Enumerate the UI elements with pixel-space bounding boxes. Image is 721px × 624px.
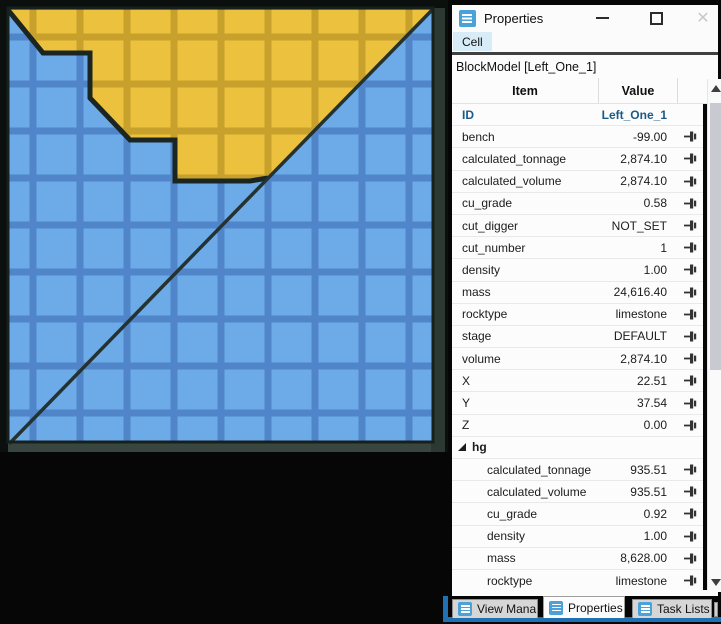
property-value: 24,616.40 bbox=[599, 285, 678, 299]
property-value: limestone bbox=[599, 307, 678, 321]
property-row[interactable]: calculated_tonnage 935.51 bbox=[452, 459, 703, 481]
property-label: calculated_volume bbox=[452, 174, 599, 188]
pin-cell[interactable] bbox=[678, 531, 703, 542]
tab-task-lists[interactable]: Task Lists bbox=[632, 599, 712, 618]
property-value: 1.00 bbox=[599, 529, 678, 543]
property-value: 1 bbox=[599, 241, 678, 255]
tab-overflow-sliver[interactable] bbox=[714, 602, 718, 617]
property-label: stage bbox=[452, 329, 599, 343]
property-value: NOT_SET bbox=[599, 219, 678, 233]
property-label: cu_grade bbox=[452, 196, 599, 210]
block-model-svg bbox=[0, 0, 448, 452]
property-label: cu_grade bbox=[452, 507, 599, 521]
property-label: hg bbox=[452, 440, 599, 454]
scrollbar-thumb[interactable] bbox=[710, 103, 721, 370]
pin-icon bbox=[684, 264, 698, 275]
blockmodel-header: BlockModel [Left_One_1] bbox=[452, 55, 718, 78]
property-value: Left_One_1 bbox=[599, 108, 678, 122]
property-value: DEFAULT bbox=[599, 329, 678, 343]
property-value: 37.54 bbox=[599, 396, 678, 410]
property-row[interactable]: Z 0.00 bbox=[452, 415, 703, 437]
scroll-down-icon[interactable] bbox=[711, 579, 721, 586]
property-label: Z bbox=[452, 418, 599, 432]
property-row[interactable]: X 22.51 bbox=[452, 370, 703, 392]
property-value: 2,874.10 bbox=[599, 174, 678, 188]
pin-cell[interactable] bbox=[678, 198, 703, 209]
property-row[interactable]: volume 2,874.10 bbox=[452, 348, 703, 370]
property-label: bench bbox=[452, 130, 599, 144]
pin-icon bbox=[684, 508, 698, 519]
view-manager-tab-icon bbox=[458, 602, 472, 616]
property-row[interactable]: calculated_tonnage 2,874.10 bbox=[452, 148, 703, 170]
property-label: rocktype bbox=[452, 307, 599, 321]
pin-cell[interactable] bbox=[678, 375, 703, 386]
property-value: 2,874.10 bbox=[599, 152, 678, 166]
tab-view-manager[interactable]: View Mana bbox=[452, 599, 538, 618]
pin-icon bbox=[684, 220, 698, 231]
property-row[interactable]: hg bbox=[452, 437, 703, 459]
pin-cell[interactable] bbox=[678, 464, 703, 475]
property-row[interactable]: mass 24,616.40 bbox=[452, 282, 703, 304]
property-label: X bbox=[452, 374, 599, 388]
property-value: 22.51 bbox=[599, 374, 678, 388]
property-row[interactable]: cu_grade 0.92 bbox=[452, 503, 703, 525]
expander-icon[interactable] bbox=[458, 443, 466, 451]
property-label: rocktype bbox=[452, 574, 599, 588]
property-label: calculated_tonnage bbox=[452, 152, 599, 166]
app-window: Properties ✕ Cell BlockModel [Left_One_1… bbox=[0, 0, 721, 624]
property-label: density bbox=[452, 529, 599, 543]
close-button[interactable]: ✕ bbox=[692, 5, 714, 31]
property-row[interactable]: calculated_volume 2,874.10 bbox=[452, 171, 703, 193]
property-row[interactable]: rocktype limestone bbox=[452, 570, 703, 592]
property-row[interactable]: cu_grade 0.58 bbox=[452, 193, 703, 215]
property-value: 935.51 bbox=[599, 463, 678, 477]
panel-title: Properties bbox=[484, 11, 543, 26]
pin-icon bbox=[684, 464, 698, 475]
pin-cell[interactable] bbox=[678, 486, 703, 497]
properties-tab-icon bbox=[549, 601, 563, 615]
task-lists-tab-icon bbox=[638, 602, 652, 616]
property-row[interactable]: stage DEFAULT bbox=[452, 326, 703, 348]
pin-cell[interactable] bbox=[678, 420, 703, 431]
pin-icon bbox=[684, 309, 698, 320]
property-value: 8,628.00 bbox=[599, 551, 678, 565]
property-label: mass bbox=[452, 285, 599, 299]
pin-icon bbox=[684, 287, 698, 298]
property-value: 0.92 bbox=[599, 507, 678, 521]
panel-titlebar: Properties ✕ bbox=[452, 5, 718, 31]
pin-icon bbox=[684, 420, 698, 431]
pin-icon bbox=[684, 486, 698, 497]
property-value: limestone bbox=[599, 574, 678, 588]
pin-icon bbox=[684, 353, 698, 364]
pin-cell[interactable] bbox=[678, 353, 703, 364]
pin-cell[interactable] bbox=[678, 242, 703, 253]
property-value: 935.51 bbox=[599, 485, 678, 499]
pin-cell[interactable] bbox=[678, 153, 703, 164]
pin-icon bbox=[684, 553, 698, 564]
pin-cell[interactable] bbox=[678, 553, 703, 564]
property-label: calculated_volume bbox=[452, 485, 599, 499]
menu-item-cell[interactable]: Cell bbox=[453, 32, 492, 51]
property-label: volume bbox=[452, 352, 599, 366]
maximize-button[interactable] bbox=[646, 5, 666, 31]
pin-icon bbox=[684, 575, 698, 586]
pin-cell[interactable] bbox=[678, 309, 703, 320]
pin-cell[interactable] bbox=[678, 131, 703, 142]
pin-cell[interactable] bbox=[678, 176, 703, 187]
pin-cell[interactable] bbox=[678, 575, 703, 586]
column-header-item: Item bbox=[452, 78, 599, 103]
pin-icon bbox=[684, 242, 698, 253]
property-value: 0.00 bbox=[599, 418, 678, 432]
pin-cell[interactable] bbox=[678, 287, 703, 298]
property-row[interactable]: ID Left_One_1 bbox=[452, 104, 703, 126]
property-row[interactable]: density 1.00 bbox=[452, 526, 703, 548]
pin-icon bbox=[684, 131, 698, 142]
pin-icon bbox=[684, 398, 698, 409]
pin-icon bbox=[684, 176, 698, 187]
property-label: cut_number bbox=[452, 241, 599, 255]
property-label: density bbox=[452, 263, 599, 277]
property-value: 0.58 bbox=[599, 196, 678, 210]
property-row[interactable]: bench -99.00 bbox=[452, 126, 703, 148]
property-label: Y bbox=[452, 396, 599, 410]
vertical-scrollbar[interactable] bbox=[707, 79, 721, 592]
property-label: cut_digger bbox=[452, 219, 599, 233]
property-label: mass bbox=[452, 551, 599, 565]
table-header: Item Value bbox=[452, 78, 718, 104]
column-header-value: Value bbox=[599, 78, 678, 103]
pin-cell[interactable] bbox=[678, 398, 703, 409]
property-label: ID bbox=[452, 108, 599, 122]
block-model-viewport[interactable] bbox=[0, 0, 448, 452]
pin-cell[interactable] bbox=[678, 220, 703, 231]
property-value: -99.00 bbox=[599, 130, 678, 144]
minimize-button[interactable] bbox=[592, 5, 612, 31]
pin-cell[interactable] bbox=[678, 508, 703, 519]
menubar: Cell bbox=[452, 31, 718, 52]
bottom-tab-bar: View Mana Properties Task Lists bbox=[448, 590, 721, 624]
property-row[interactable]: cut_digger NOT_SET bbox=[452, 215, 703, 237]
properties-panel-icon bbox=[459, 10, 476, 27]
property-value: 1.00 bbox=[599, 263, 678, 277]
property-value: 2,874.10 bbox=[599, 352, 678, 366]
properties-panel: Properties ✕ Cell BlockModel [Left_One_1… bbox=[448, 0, 721, 624]
pin-icon bbox=[684, 375, 698, 386]
pin-icon bbox=[684, 153, 698, 164]
pin-icon bbox=[684, 531, 698, 542]
property-row[interactable]: rocktype limestone bbox=[452, 304, 703, 326]
property-row[interactable]: density 1.00 bbox=[452, 259, 703, 281]
property-table: ID Left_One_1 bench -99.00 calculated_to… bbox=[452, 104, 703, 593]
tab-properties[interactable]: Properties bbox=[543, 596, 625, 618]
pin-icon bbox=[684, 198, 698, 209]
property-row[interactable]: mass 8,628.00 bbox=[452, 548, 703, 570]
pin-cell[interactable] bbox=[678, 264, 703, 275]
property-row[interactable]: calculated_volume 935.51 bbox=[452, 481, 703, 503]
scroll-up-icon[interactable] bbox=[711, 85, 721, 92]
property-row[interactable]: cut_number 1 bbox=[452, 237, 703, 259]
property-label: calculated_tonnage bbox=[452, 463, 599, 477]
pin-cell[interactable] bbox=[678, 331, 703, 342]
property-row[interactable]: Y 37.54 bbox=[452, 392, 703, 414]
pin-icon bbox=[684, 331, 698, 342]
